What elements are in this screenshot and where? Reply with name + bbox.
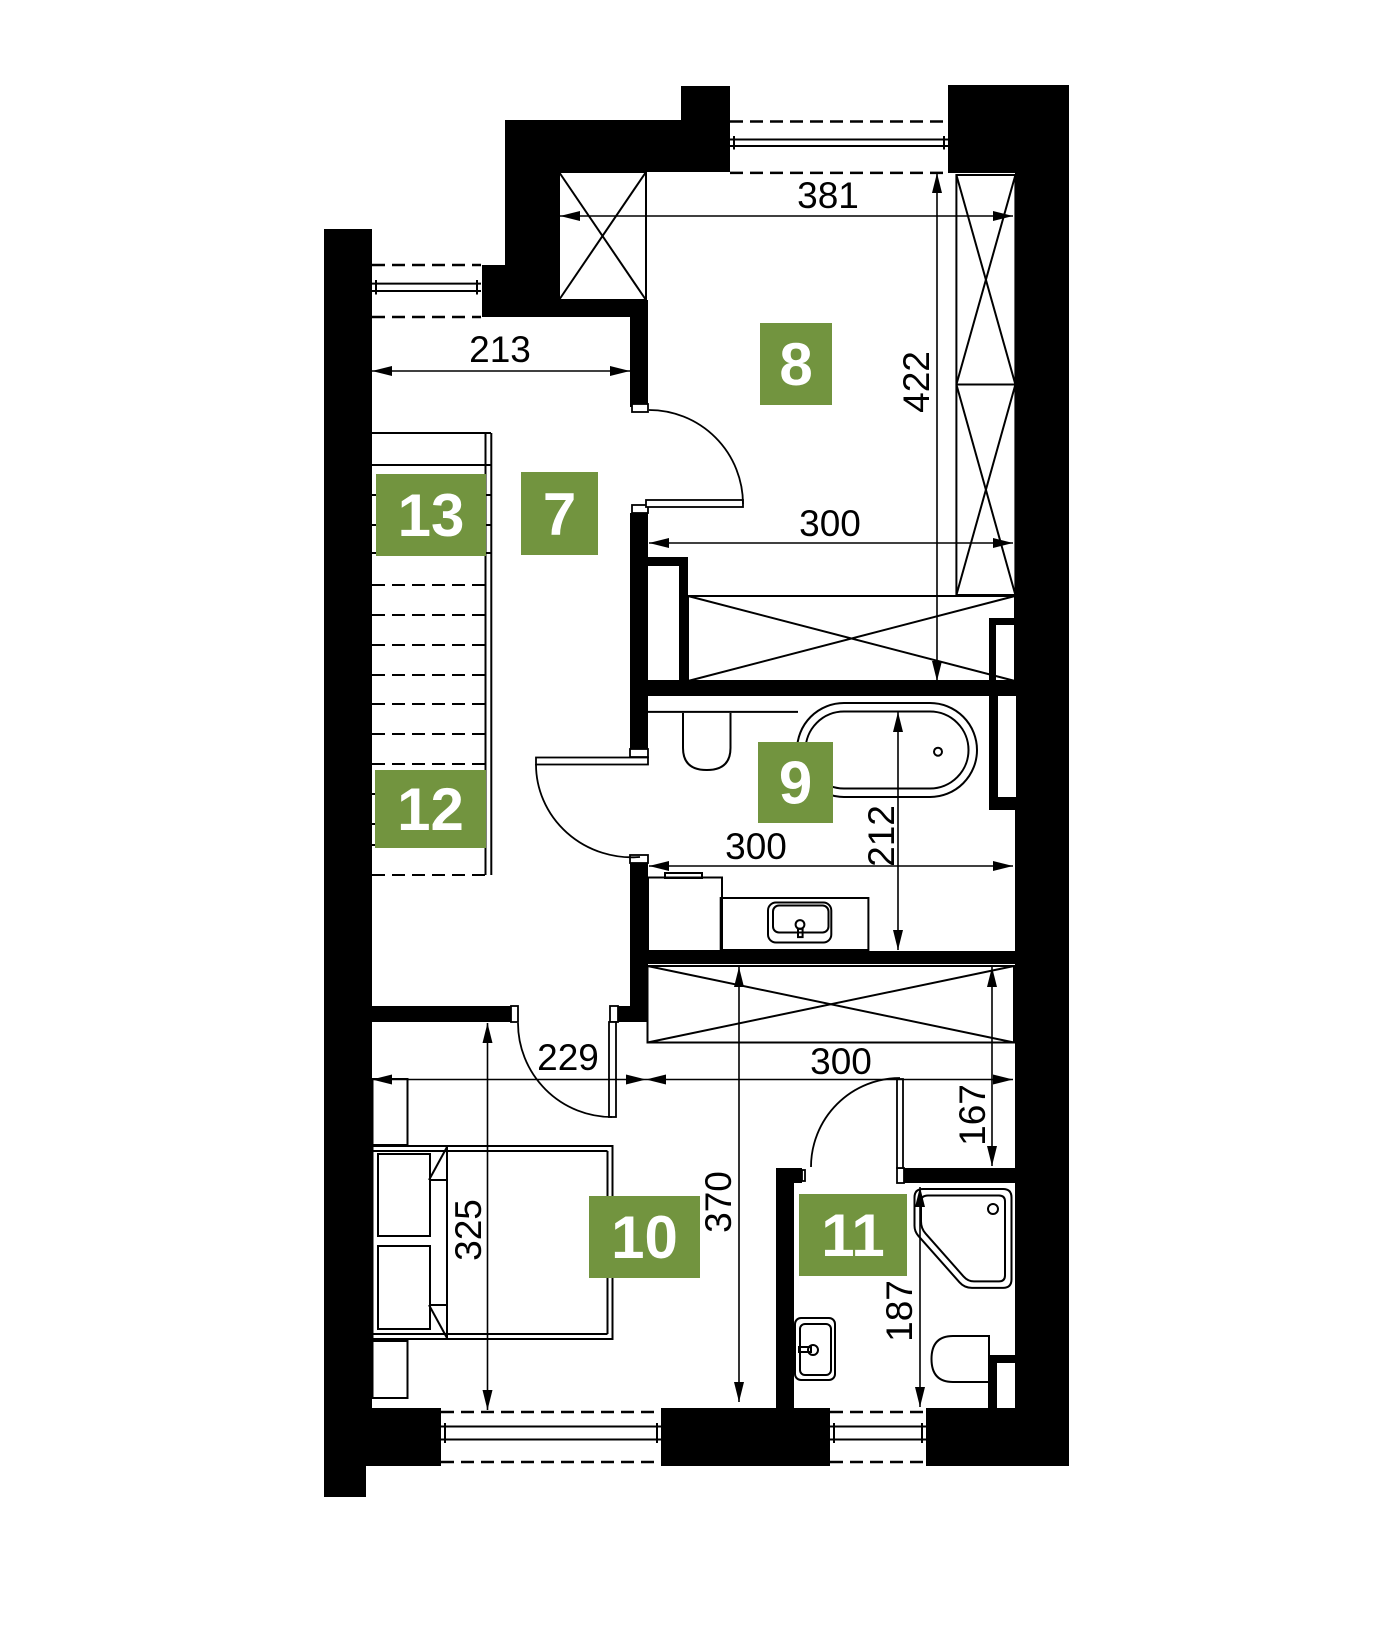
svg-text:325: 325 [448, 1199, 489, 1261]
svg-text:213: 213 [469, 329, 531, 370]
svg-text:300: 300 [799, 503, 861, 544]
svg-text:300: 300 [725, 826, 787, 867]
svg-text:229: 229 [537, 1037, 599, 1078]
svg-text:187: 187 [879, 1280, 920, 1342]
svg-text:9: 9 [779, 750, 812, 817]
svg-text:370: 370 [698, 1171, 739, 1233]
svg-text:422: 422 [896, 351, 937, 413]
svg-text:13: 13 [398, 482, 465, 549]
svg-text:7: 7 [543, 481, 576, 548]
svg-text:12: 12 [397, 776, 464, 843]
svg-text:11: 11 [821, 1202, 884, 1269]
svg-text:381: 381 [797, 175, 859, 216]
svg-text:212: 212 [861, 805, 902, 867]
svg-text:167: 167 [952, 1084, 993, 1146]
svg-text:300: 300 [810, 1041, 872, 1082]
svg-text:8: 8 [779, 331, 812, 398]
svg-text:10: 10 [611, 1204, 678, 1271]
